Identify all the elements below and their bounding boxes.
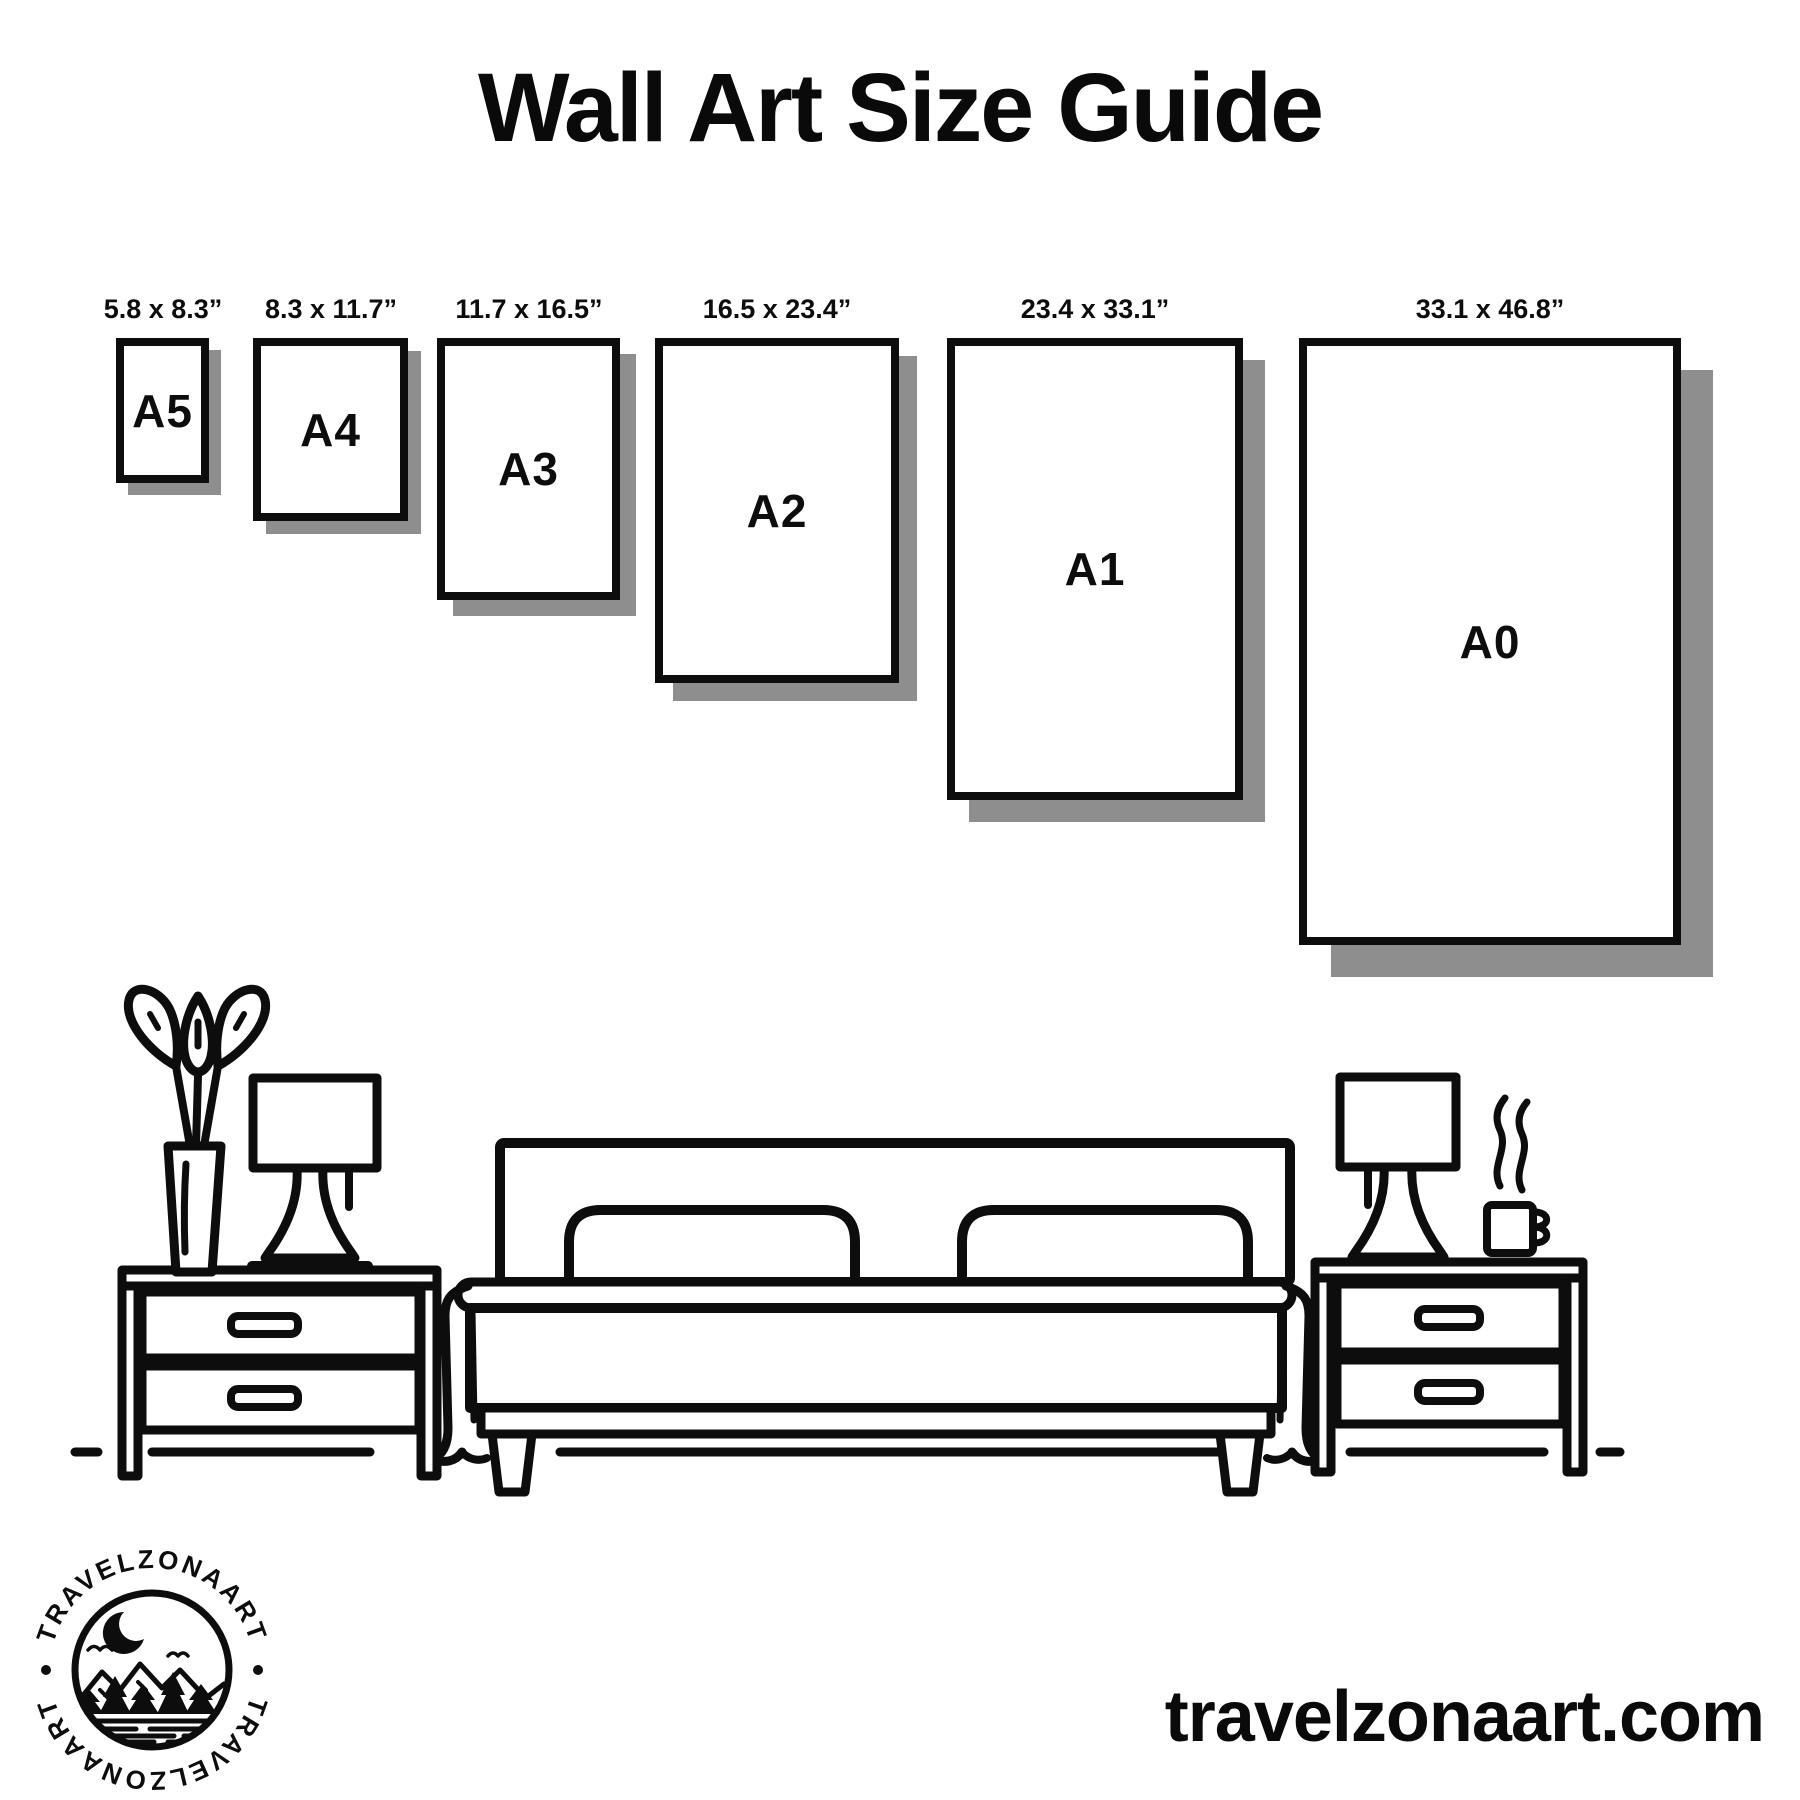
bed-leg-left — [492, 1434, 532, 1492]
paper-frame-a0: A0 — [1299, 338, 1681, 945]
paper-size-name-a3: A3 — [498, 442, 559, 496]
pine-tree — [127, 1684, 159, 1714]
drawer-bottom — [1337, 1360, 1563, 1424]
coffee-mug — [1467, 1098, 1553, 1262]
table-lamp-right — [1340, 1077, 1456, 1263]
badge-dot — [253, 1665, 263, 1675]
size-dimensions-label-a0: 33.1 x 46.8” — [1108, 291, 1800, 327]
bed — [433, 1143, 1321, 1492]
page-title: Wall Art Size Guide — [0, 52, 1800, 164]
drawer-top — [142, 1292, 419, 1358]
paper-frame-a5: A5 — [116, 338, 209, 483]
paper-frame-a3: A3 — [437, 338, 620, 600]
vase-highlight — [184, 1164, 186, 1252]
steam-line — [1497, 1098, 1505, 1186]
bed-leg-right — [1220, 1434, 1260, 1492]
paper-size-name-a4: A4 — [300, 403, 361, 457]
drawer-bottom — [142, 1366, 419, 1430]
pine-tree — [185, 1684, 217, 1714]
stem — [176, 1066, 190, 1146]
paper-size-name-a2: A2 — [747, 484, 808, 538]
nightstand-left — [122, 1270, 437, 1476]
paper-frame-a2: A2 — [655, 338, 899, 683]
lamp-shade — [1340, 1077, 1456, 1167]
mug-body — [1487, 1205, 1533, 1253]
badge-dot — [41, 1665, 51, 1675]
leaf-right — [217, 989, 266, 1066]
bird-icon — [88, 1647, 112, 1651]
bed-base — [470, 1308, 1282, 1408]
bedroom-illustration — [60, 970, 1680, 1510]
nightstand-leg — [1567, 1278, 1583, 1472]
lamp-shade — [253, 1078, 377, 1168]
nightstand-right — [1315, 1262, 1583, 1472]
website-url: travelzonaart.com — [1165, 1676, 1764, 1758]
badge-inner-ring — [75, 1593, 229, 1747]
vase-with-plant — [128, 989, 265, 1272]
nightstand-top — [122, 1270, 437, 1286]
paper-size-name-a0: A0 — [1460, 615, 1521, 669]
leaf-left — [128, 989, 177, 1066]
stem — [196, 1076, 198, 1146]
bed-rail — [481, 1408, 1271, 1434]
vase — [168, 1146, 221, 1272]
drawer-top — [1337, 1284, 1563, 1352]
wall-art-size-guide-poster: Wall Art Size Guide 5.8 x 8.3” 8.3 x 11.… — [0, 0, 1800, 1800]
nightstand-leg — [1315, 1278, 1331, 1472]
pine-tree — [157, 1672, 189, 1714]
paper-frame-a4: A4 — [253, 338, 408, 521]
paper-size-name-a5: A5 — [132, 384, 193, 438]
bird-icon — [168, 1653, 188, 1656]
steam-line — [1519, 1102, 1527, 1190]
table-lamp-left — [252, 1078, 377, 1266]
paper-size-name-a1: A1 — [1065, 542, 1126, 596]
lamp-stem — [265, 1168, 355, 1258]
stem — [204, 1066, 218, 1146]
paper-frame-a1: A1 — [947, 338, 1243, 800]
brand-logo-badge: TRAVELZONAART TRAVELZONAART — [28, 1546, 276, 1794]
nightstand-leg — [122, 1286, 138, 1476]
nightstand-top — [1315, 1262, 1583, 1278]
